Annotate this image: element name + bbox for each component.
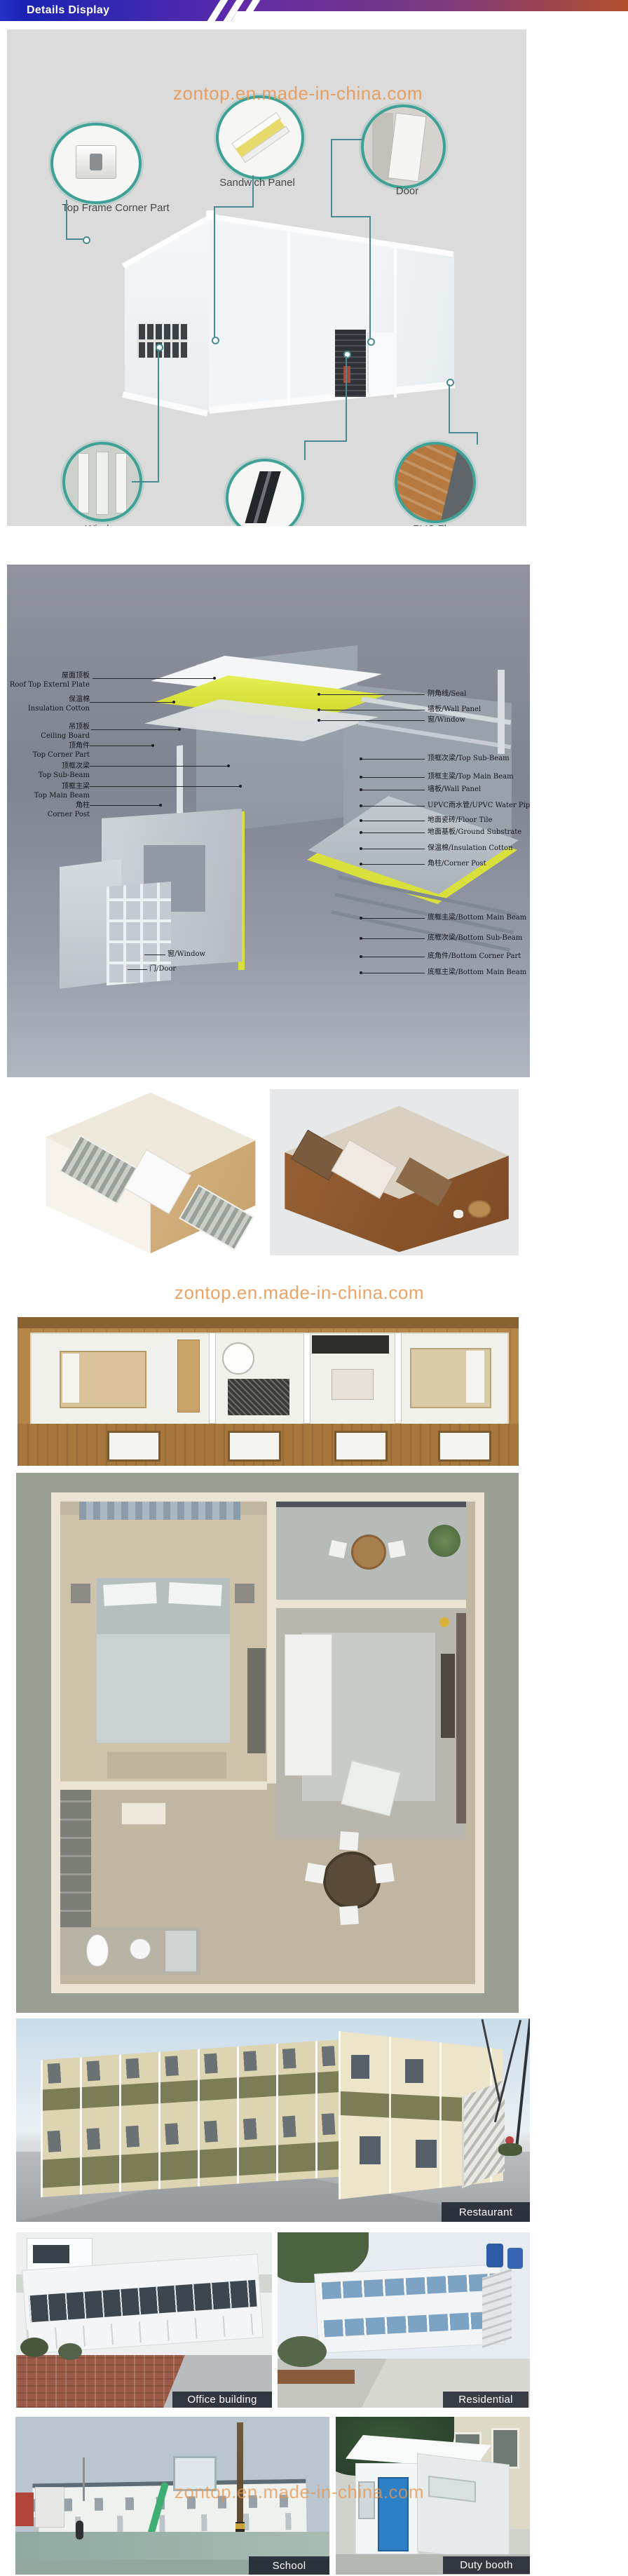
- rline-7: [361, 821, 425, 821]
- dot-pvc: [446, 379, 454, 386]
- shower-circle: [222, 1342, 254, 1375]
- house-left-face: [125, 215, 209, 412]
- label-en: Top Main Beam: [34, 791, 90, 800]
- lline-3: [90, 746, 153, 746]
- line-window-h: [132, 481, 159, 483]
- residential-photo: Residential: [278, 2232, 530, 2408]
- iline-door: [128, 969, 147, 970]
- exploded-right-label-0: 阴角线/Seal: [428, 690, 466, 699]
- rdot-8: [360, 831, 362, 834]
- ldot-3: [151, 744, 154, 747]
- school-doors: [33, 2513, 306, 2535]
- line-c2-h: [214, 206, 254, 208]
- residential-label: Residential: [443, 2392, 528, 2408]
- line-col-v2: [304, 440, 306, 460]
- label-zh: 吊顶板: [41, 722, 90, 731]
- residential-window-strip-2: [322, 2311, 499, 2337]
- rline-0: [319, 694, 425, 695]
- ring-top-frame-corner-part: [50, 123, 142, 204]
- plan-balcony-table: [351, 1535, 386, 1570]
- exploded-right-label-10: 角柱/Corner Post: [428, 860, 486, 868]
- banner-right-strip: [217, 0, 628, 11]
- office-roof-box-window: [33, 2245, 69, 2263]
- house-dark-door: [335, 330, 366, 397]
- plan-nightstand-2: [235, 1584, 254, 1603]
- exploded-right-label-4: 顶框主梁/Top Main Beam: [428, 773, 514, 781]
- plan-dining-chair-2: [374, 1863, 394, 1883]
- ring-window: [62, 442, 142, 522]
- label-en: Corner Post: [48, 810, 90, 819]
- booth-side-face: [417, 2453, 510, 2563]
- exploded-inner-label-door: 门/Door: [149, 965, 176, 973]
- exploded-right-label-7: 地面瓷砖/Floor Tile: [428, 816, 493, 825]
- residential-bush: [278, 2336, 327, 2367]
- rline-3: [361, 759, 425, 760]
- residential-building: [314, 2264, 505, 2354]
- interior-render-right: [270, 1089, 519, 1255]
- label-en: Roof Top Externl Plate: [10, 680, 90, 689]
- plan-tv-wall: [456, 1613, 466, 1823]
- lline-1: [90, 702, 174, 703]
- residential-label-text: Residential: [458, 2394, 513, 2406]
- lline-5: [90, 786, 240, 787]
- restaurant-photo: Restaurant: [16, 2018, 530, 2222]
- plan-bedroom-rug: [107, 1752, 226, 1779]
- rline-11: [361, 918, 425, 919]
- plan-balcony-railing: [276, 1502, 466, 1507]
- exploded-right-label-9: 保温棉/Insulation Cotton: [428, 844, 513, 853]
- top-rail: [18, 1317, 519, 1328]
- exploded-right-label-3: 顶框次梁/Top Sub-Beam: [428, 755, 510, 763]
- label-en: Insulation Cotton: [28, 704, 90, 713]
- label-pvc-floor: PVC Floor: [413, 523, 461, 526]
- label-top-frame-corner-part: Top Frame Corner Part: [62, 202, 169, 214]
- room2-chair: [453, 1210, 463, 1218]
- rdot-3: [360, 757, 362, 760]
- partition-3: [395, 1333, 402, 1424]
- rdot-11: [360, 917, 362, 919]
- exploded-right-label-11: 底框主梁/Bottom Main Beam: [428, 914, 526, 922]
- plan-toilet: [86, 1934, 109, 1967]
- plan-balcony-chair-2: [388, 1540, 405, 1558]
- ldot-1: [172, 701, 175, 703]
- container-top-view: [18, 1317, 519, 1466]
- office-bush-1: [20, 2338, 48, 2357]
- rdot-2: [318, 719, 320, 722]
- window-art-frame1: [78, 453, 89, 513]
- restaurant-left-face: [41, 2039, 339, 2197]
- rdot-0: [318, 693, 320, 696]
- house-barred-window: [137, 324, 187, 358]
- line-c1-v: [66, 200, 67, 240]
- label-zh: 顶框主梁: [34, 782, 90, 791]
- exploded-right-label-6: UPVC雨水管/UPVC Water Pipe: [428, 802, 530, 810]
- plan-nightstand-1: [71, 1584, 90, 1603]
- line-c2-v1: [252, 175, 254, 208]
- rdot-14: [360, 971, 362, 974]
- dot-c1: [83, 236, 90, 244]
- dot-corner-column: [343, 351, 351, 358]
- rline-2: [319, 720, 425, 721]
- line-col-v1: [346, 356, 347, 442]
- rdot-5: [360, 788, 362, 791]
- label-zh: 顶框次梁: [39, 762, 90, 771]
- ring-corner-column: [226, 459, 304, 526]
- rdot-7: [360, 819, 362, 822]
- exploded-right-label-13: 底角件/Bottom Corner Part: [428, 952, 521, 961]
- plan-dining-chair-1: [305, 1863, 326, 1884]
- exploded-left-label-4: 顶框次梁 Top Sub-Beam: [39, 762, 90, 780]
- plan-bed-duvet: [97, 1634, 230, 1743]
- plan-wall-vertical: [267, 1502, 276, 1783]
- model-corner-post-right: [498, 670, 505, 754]
- exploded-left-label-3: 顶角件 Top Corner Part: [33, 741, 90, 760]
- label-door: Door: [396, 185, 419, 197]
- corner-part-slot: [90, 154, 102, 170]
- container-house-illustration: [77, 205, 470, 429]
- label-zh: 屋面顶板: [10, 671, 90, 680]
- plan-sofa: [285, 1634, 332, 1776]
- exploded-left-label-2: 吊顶板 Ceiling Board: [41, 722, 90, 741]
- watermark-top: zontop.en.made-in-china.com: [173, 83, 423, 104]
- plan-dining-table: [323, 1852, 381, 1909]
- partition-2: [303, 1333, 310, 1424]
- exploded-left-label-0: 屋面顶板 Roof Top Externl Plate: [10, 671, 90, 689]
- school-red-building: [15, 2493, 34, 2526]
- label-zh: 顶角件: [33, 741, 90, 750]
- plan-floor-lamp: [439, 1617, 449, 1627]
- rdot-12: [360, 937, 362, 940]
- win-right-1: [351, 2055, 369, 2079]
- school-light-pole: [83, 2457, 85, 2501]
- rline-10: [361, 864, 425, 865]
- rline-9: [361, 849, 425, 849]
- details-display-page: Details Display: [0, 0, 628, 2576]
- office-container-row: [22, 2253, 264, 2354]
- office-bush-2: [58, 2343, 82, 2360]
- plan-balcony-chair-1: [329, 1540, 347, 1558]
- exploded-right-label-12: 底框次梁/Bottom Sub-Beam: [428, 934, 522, 943]
- exploded-right-label-5: 墙板/Wall Panel: [428, 785, 481, 794]
- ring-pvc-floor: [395, 442, 476, 523]
- plan-wall-hall: [60, 1781, 267, 1790]
- ring-door: [361, 104, 446, 189]
- ldot-5: [239, 785, 242, 788]
- plan-shelf: [121, 1802, 166, 1825]
- lline-0: [93, 678, 214, 679]
- door-art-leaf: [388, 113, 426, 182]
- watermark-bottom: zontop.en.made-in-china.com: [175, 2481, 424, 2503]
- office-building-label-text: Office building: [187, 2394, 257, 2406]
- lline-4: [90, 766, 228, 767]
- lline-6: [90, 805, 161, 806]
- line-window-v: [158, 349, 159, 483]
- win-right-3: [360, 2136, 381, 2164]
- label-zh: 角柱: [48, 801, 90, 810]
- rline-13: [361, 957, 425, 957]
- school-white-block: [35, 2487, 64, 2528]
- house-mullion-1: [287, 233, 290, 405]
- partition-1: [209, 1333, 216, 1424]
- rdot-10: [360, 863, 362, 865]
- line-pvc-v2: [477, 432, 478, 445]
- bath-tile: [228, 1379, 289, 1415]
- label-en: Top Sub-Beam: [39, 771, 90, 780]
- watermark-middle: zontop.en.made-in-china.com: [175, 1282, 424, 1304]
- label-en: Ceiling Board: [41, 731, 90, 741]
- facade-window-3: [334, 1431, 388, 1462]
- office-building-photo: Office building: [16, 2232, 272, 2408]
- lline-2: [91, 729, 179, 730]
- residential-barrel-1: [486, 2244, 503, 2267]
- rdot-13: [360, 955, 362, 958]
- dot-c3: [367, 338, 375, 346]
- rline-14: [361, 973, 425, 973]
- wardrobe-left: [177, 1340, 200, 1412]
- interior-render-left: [27, 1086, 265, 1257]
- duty-booth-label-text: Duty booth: [460, 2559, 513, 2571]
- win-right-2: [405, 2059, 423, 2083]
- sandwich-panel-art: [231, 113, 287, 161]
- exploded-left-label-5: 顶框主梁 Top Main Beam: [34, 782, 90, 800]
- dot-c2: [212, 337, 219, 344]
- school-label: School: [249, 2556, 329, 2575]
- rdot-6: [360, 804, 362, 807]
- plan-dining-chair-3: [339, 1831, 359, 1851]
- school-label-text: School: [273, 2560, 306, 2572]
- school-person: [76, 2521, 83, 2540]
- residential-planter: [278, 2370, 355, 2384]
- exploded-right-label-1: 墙板/Wall Panel: [428, 706, 481, 714]
- exploded-left-label-6: 角柱 Corner Post: [48, 801, 90, 819]
- exploded-right-label-8: 地面基板/Ground Substrate: [428, 828, 521, 837]
- facade-window-1: [107, 1431, 161, 1462]
- plan-wardrobe: [247, 1648, 266, 1753]
- bed-left-pillow: [62, 1354, 79, 1403]
- plan-tv-console: [441, 1654, 455, 1738]
- house-right-face: [209, 215, 454, 412]
- plan-curtain-band: [79, 1502, 240, 1520]
- plan-pillow-1: [103, 1582, 156, 1606]
- residential-stairs: [482, 2268, 512, 2348]
- office-building-label: Office building: [172, 2392, 272, 2408]
- plan-dining-chair-4: [339, 1906, 359, 1925]
- line-c3-v1: [331, 139, 332, 217]
- label-window: Window: [85, 523, 122, 526]
- line-pvc-v1: [449, 384, 450, 433]
- room2-round-table: [467, 1200, 491, 1218]
- duty-booth-label: Duty booth: [443, 2556, 530, 2574]
- window-art-frame2: [96, 452, 109, 515]
- line-c3-v2: [369, 216, 371, 341]
- line-c3-h1: [331, 139, 362, 140]
- ldot-2: [178, 728, 181, 731]
- rdot-9: [360, 847, 362, 850]
- plan-pillow-2: [168, 1582, 221, 1606]
- plan-wall-balcony-living: [276, 1600, 466, 1608]
- rdot-4: [360, 776, 362, 778]
- plan-closet: [60, 1790, 91, 1930]
- ring-sandwich-panel: [216, 95, 304, 180]
- label-zh: 保温棉: [28, 695, 90, 704]
- line-c2-v2: [214, 206, 215, 339]
- plan-balcony-plant: [428, 1525, 460, 1557]
- page-title: Details Display: [27, 0, 109, 21]
- window-art-frame3: [116, 453, 127, 513]
- label-sandwich-panel: Sandwich Panel: [219, 177, 295, 189]
- plan-shower: [165, 1930, 197, 1972]
- line-col-h: [304, 440, 347, 442]
- plan-sink: [130, 1938, 151, 1960]
- exploded-left-label-1: 保温棉 Insulation Cotton: [28, 695, 90, 713]
- win-right-4: [416, 2140, 437, 2168]
- rline-12: [361, 938, 425, 939]
- facade-window-4: [438, 1431, 491, 1462]
- rline-6: [361, 806, 425, 807]
- restaurant-label-text: Restaurant: [459, 2206, 512, 2218]
- rline-5: [361, 790, 425, 790]
- exploded-structure-diagram: 屋面顶板 Roof Top Externl Plate 保温棉 Insulati…: [7, 565, 530, 1077]
- exploded-right-label-2: 窗/Window: [428, 716, 465, 724]
- tree-branch-3: [516, 2018, 530, 2144]
- ldot-6: [159, 804, 162, 807]
- facade-window-2: [228, 1431, 281, 1462]
- ldot-0: [213, 677, 216, 680]
- rline-1: [319, 710, 425, 710]
- line-c3-h2: [331, 216, 371, 217]
- label-en: Top Corner Part: [33, 750, 90, 760]
- rline-8: [361, 832, 425, 833]
- dining-table: [332, 1369, 374, 1400]
- house-door-red-detail: [343, 366, 350, 383]
- header-banner: Details Display: [0, 0, 628, 21]
- exploded-inner-label-window: 窗/Window: [168, 950, 205, 959]
- residential-window-strip-1: [320, 2273, 497, 2299]
- floor-plan-render: [16, 1473, 519, 2013]
- exploded-right-label-14: 底框主梁/Bottom Main Beam: [428, 969, 526, 977]
- line-pvc-h: [449, 432, 478, 433]
- iline-window: [144, 955, 165, 955]
- kitchen-counter: [312, 1335, 389, 1354]
- ldot-4: [227, 764, 230, 767]
- rdot-1: [318, 708, 320, 711]
- restaurant-label: Restaurant: [442, 2202, 530, 2222]
- planter-green: [498, 2143, 522, 2156]
- bed-right-pillow: [466, 1351, 484, 1403]
- residential-barrel-2: [507, 2248, 523, 2269]
- rline-4: [361, 777, 425, 778]
- dot-window: [156, 344, 163, 351]
